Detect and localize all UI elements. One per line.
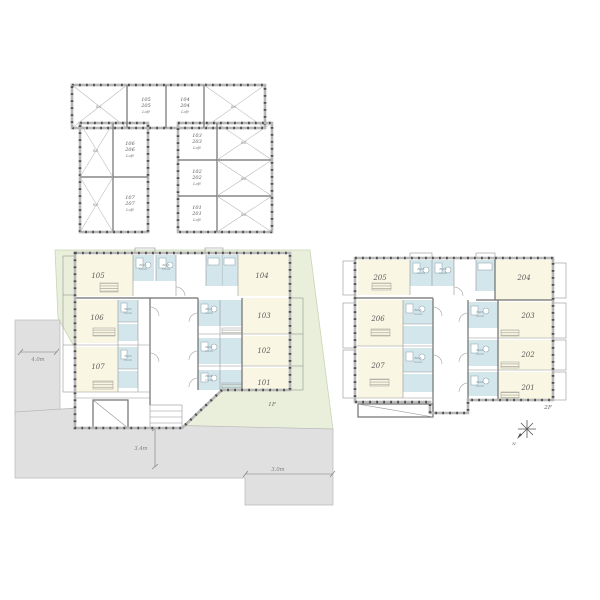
counter (222, 383, 242, 389)
balcony-label: Bal. (240, 177, 247, 181)
dimension-bottom: 3.4m (134, 446, 147, 452)
room-label-204: 204 (516, 274, 530, 282)
room-label-105: 105 (91, 272, 105, 280)
stairs-2f (358, 404, 433, 417)
loft-label: Loft (141, 109, 150, 114)
balcony-strip-left (343, 303, 355, 348)
floor-label-2f: 2F (543, 405, 553, 411)
loft-label: Loft (192, 145, 201, 150)
bath-label: room (205, 378, 213, 382)
balcony-strip-left (343, 261, 355, 295)
dimension-left: 4.0m (30, 357, 44, 363)
loft-room-101-201: 101 201 Loft (191, 205, 202, 222)
bed (371, 329, 390, 336)
counter (501, 330, 519, 336)
counter (222, 328, 242, 334)
room-label-103: 103 (257, 312, 271, 320)
room-206 (358, 300, 403, 346)
bath-label: room (414, 360, 422, 364)
floor-label-1f: 1F (268, 402, 277, 408)
loft-room-105-205: 105 205 Loft (140, 97, 151, 114)
room-label-104: 104 (255, 272, 268, 280)
bed (370, 379, 389, 386)
room-label-202: 202 (520, 351, 535, 359)
loft-label: Loft (125, 153, 134, 158)
bath-label: room (439, 271, 447, 275)
room-label-207: 207 (370, 362, 385, 370)
loft-room-104-204: 104 204 Loft (179, 97, 190, 114)
bath-label: room (476, 314, 484, 318)
balcony-label: Bal. (230, 105, 237, 109)
loft-room-102-202: 102 202 Loft (191, 169, 202, 186)
first-floor-site-plan: 4.0m 3.4m 3.0m (10, 243, 345, 535)
kitchen (118, 371, 138, 388)
floor-plan-document: { "colors": { "room_fill": "#f9f6e3", "w… (0, 0, 600, 600)
bathroom (220, 338, 242, 364)
bath-label: room (476, 384, 484, 388)
balcony-label: Bal. (92, 149, 99, 153)
bath-label: room (124, 358, 132, 362)
room-label-203: 203 (520, 312, 535, 320)
loft-room-106-206: 106 206 Loft (124, 141, 135, 158)
loft-room-103-203: 103 203 Loft (191, 133, 202, 150)
bath-label: room (162, 267, 170, 271)
balcony-strip-left (343, 350, 355, 398)
balcony-strip-right (553, 303, 566, 338)
bath-label: room (205, 311, 213, 315)
balcony-label: Bal. (92, 203, 99, 207)
bed (93, 381, 113, 389)
north-compass-icon: N (511, 420, 536, 446)
room-label-106: 106 (90, 314, 104, 322)
room-label-107: 107 (91, 363, 105, 371)
bath-label: room (124, 311, 132, 315)
dimension-right: 3.0m (271, 467, 284, 473)
loft-label: Loft (192, 217, 201, 222)
compass-north-label: N (511, 441, 516, 446)
kitchen (403, 374, 433, 392)
balcony-label: Bal. (240, 213, 247, 217)
counter (501, 362, 519, 368)
bath-label: room (205, 349, 213, 353)
kitchen (118, 324, 138, 341)
road-left (15, 320, 60, 417)
balcony-label: Bal. (95, 105, 102, 109)
bed (372, 283, 391, 290)
balcony-strip-right (553, 263, 566, 298)
second-floor-plan: 205 204 206 207 203 202 201 Bath room Ba… (338, 243, 578, 453)
bath-label: room (476, 352, 484, 356)
loft-label: Loft (125, 207, 134, 212)
balcony-label: Bal. (240, 141, 247, 145)
room-label-101: 101 (257, 379, 270, 387)
room-207 (358, 348, 403, 398)
bed (93, 328, 115, 336)
loft-room-107-207: 107 207 Loft (124, 195, 135, 212)
loft-plan: Bal. Bal. Bal. Bal. Bal. Bal. Bal. 105 2… (68, 80, 280, 238)
room-label-205: 205 (372, 274, 387, 282)
bath-label: room (139, 267, 147, 271)
loft-label: Loft (192, 181, 201, 186)
kitchen (403, 326, 433, 344)
balcony-strip-right (553, 340, 566, 370)
counter (501, 392, 519, 398)
bath-label: room (417, 271, 425, 275)
balcony-strip-right (553, 372, 566, 400)
bath-label: room (414, 312, 422, 316)
loft-label: Loft (180, 109, 189, 114)
room-label-206: 206 (370, 315, 385, 323)
bathroom (220, 300, 242, 326)
room-label-102: 102 (257, 347, 271, 355)
bed (100, 283, 118, 292)
room-label-201: 201 (520, 384, 534, 392)
